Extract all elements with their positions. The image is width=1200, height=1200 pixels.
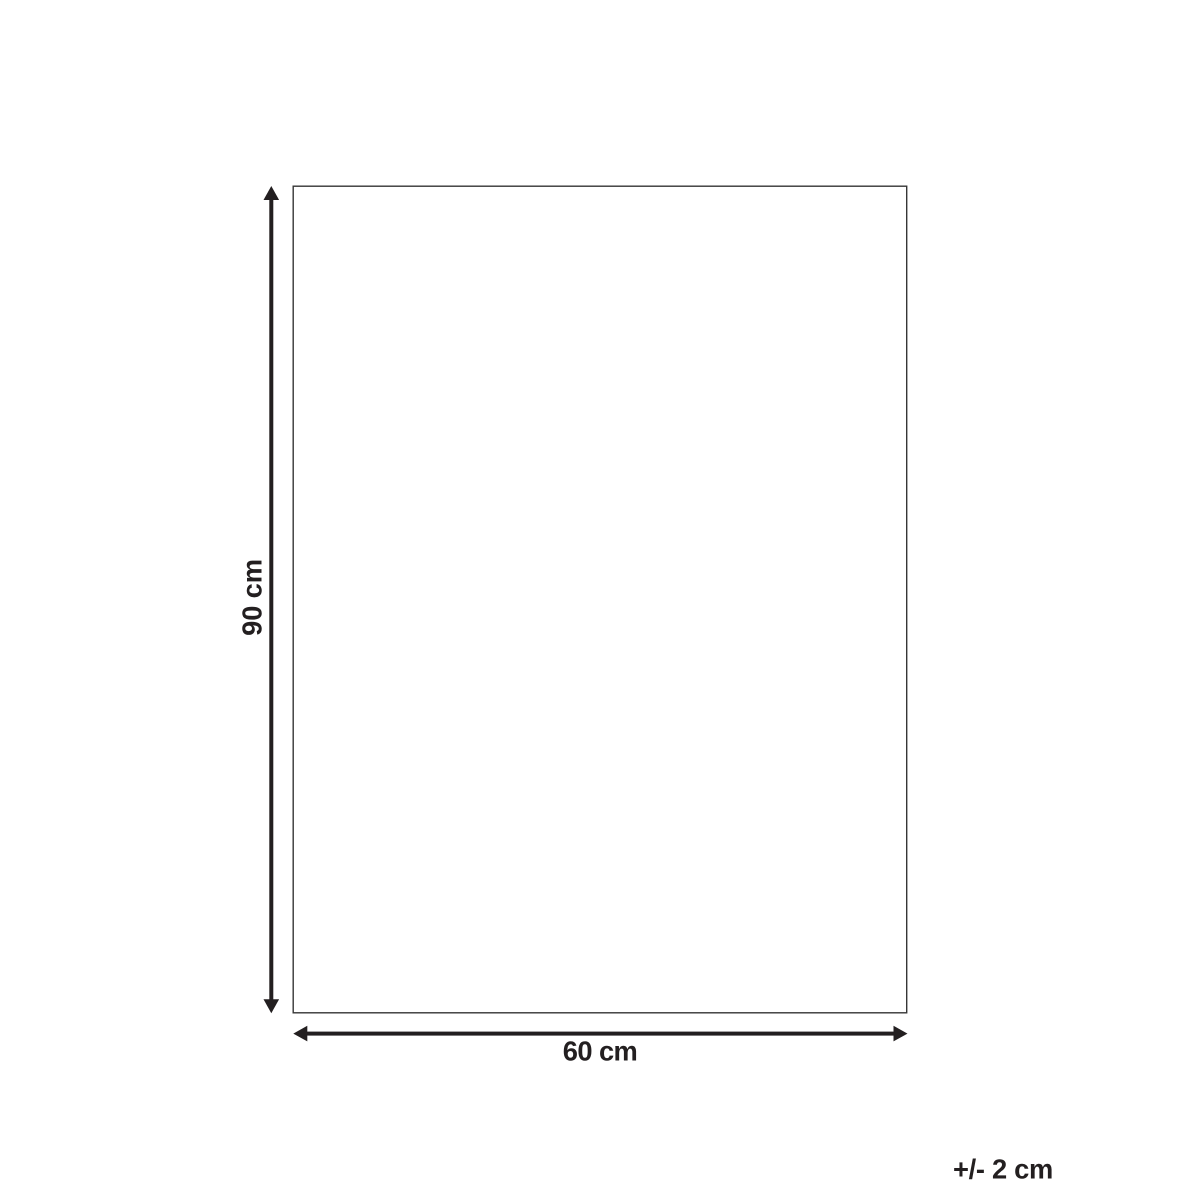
svg-text:+/- 2 cm: +/- 2 cm [953, 1154, 1053, 1185]
svg-text:90 cm: 90 cm [237, 559, 268, 636]
svg-text:60 cm: 60 cm [563, 1035, 637, 1066]
